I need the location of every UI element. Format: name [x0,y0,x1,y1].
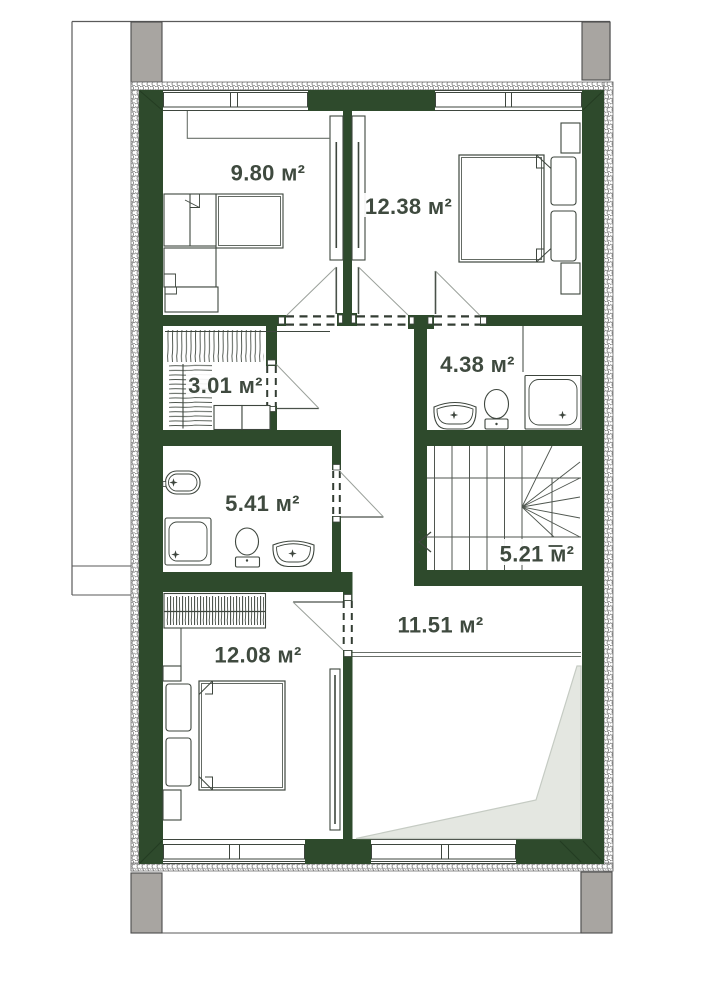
svg-text:5.41 м²: 5.41 м² [225,491,300,516]
svg-text:9.80 м²: 9.80 м² [231,161,306,186]
svg-text:3.01 м²: 3.01 м² [188,373,263,398]
svg-text:12.08 м²: 12.08 м² [214,643,301,668]
svg-text:5.21 м²: 5.21 м² [500,542,575,567]
svg-text:12.38 м²: 12.38 м² [365,194,452,219]
svg-text:11.51 м²: 11.51 м² [398,613,484,638]
svg-text:4.38 м²: 4.38 м² [440,352,515,377]
